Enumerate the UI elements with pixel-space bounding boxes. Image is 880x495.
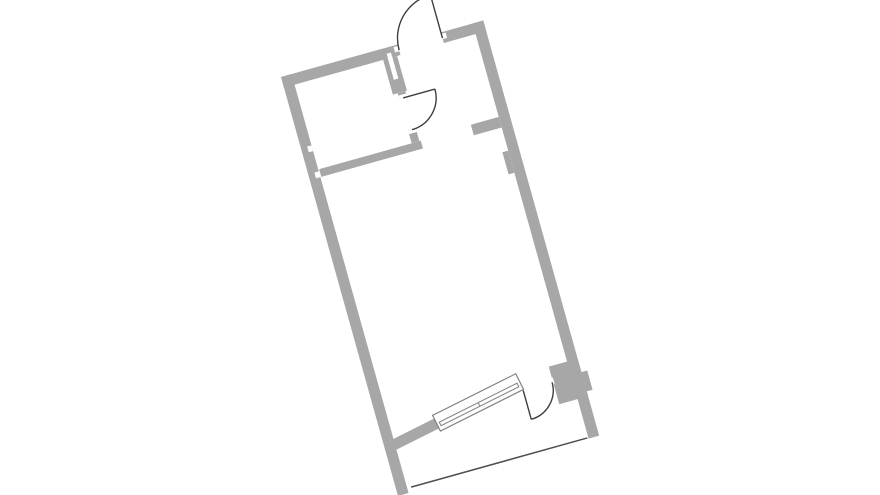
floor-plan	[0, 0, 880, 495]
bathroom-bottom-wall	[319, 141, 423, 177]
balcony-door-pier	[549, 359, 588, 405]
bathroom-door-arc	[403, 89, 444, 130]
balcony-door-leaf	[523, 390, 531, 419]
canvas-background	[0, 0, 880, 495]
window-assembly	[389, 374, 524, 453]
bathroom-door-leaf	[403, 89, 435, 98]
entrance-door-leaf	[430, 0, 442, 38]
balcony-door-arc	[523, 382, 560, 419]
window-wall-left	[390, 419, 439, 451]
balcony-outline	[411, 438, 587, 487]
top-wall-left	[281, 44, 401, 87]
entry-stub-wall	[471, 117, 502, 135]
left-wall	[281, 74, 409, 495]
floor-plan-root	[271, 0, 607, 495]
